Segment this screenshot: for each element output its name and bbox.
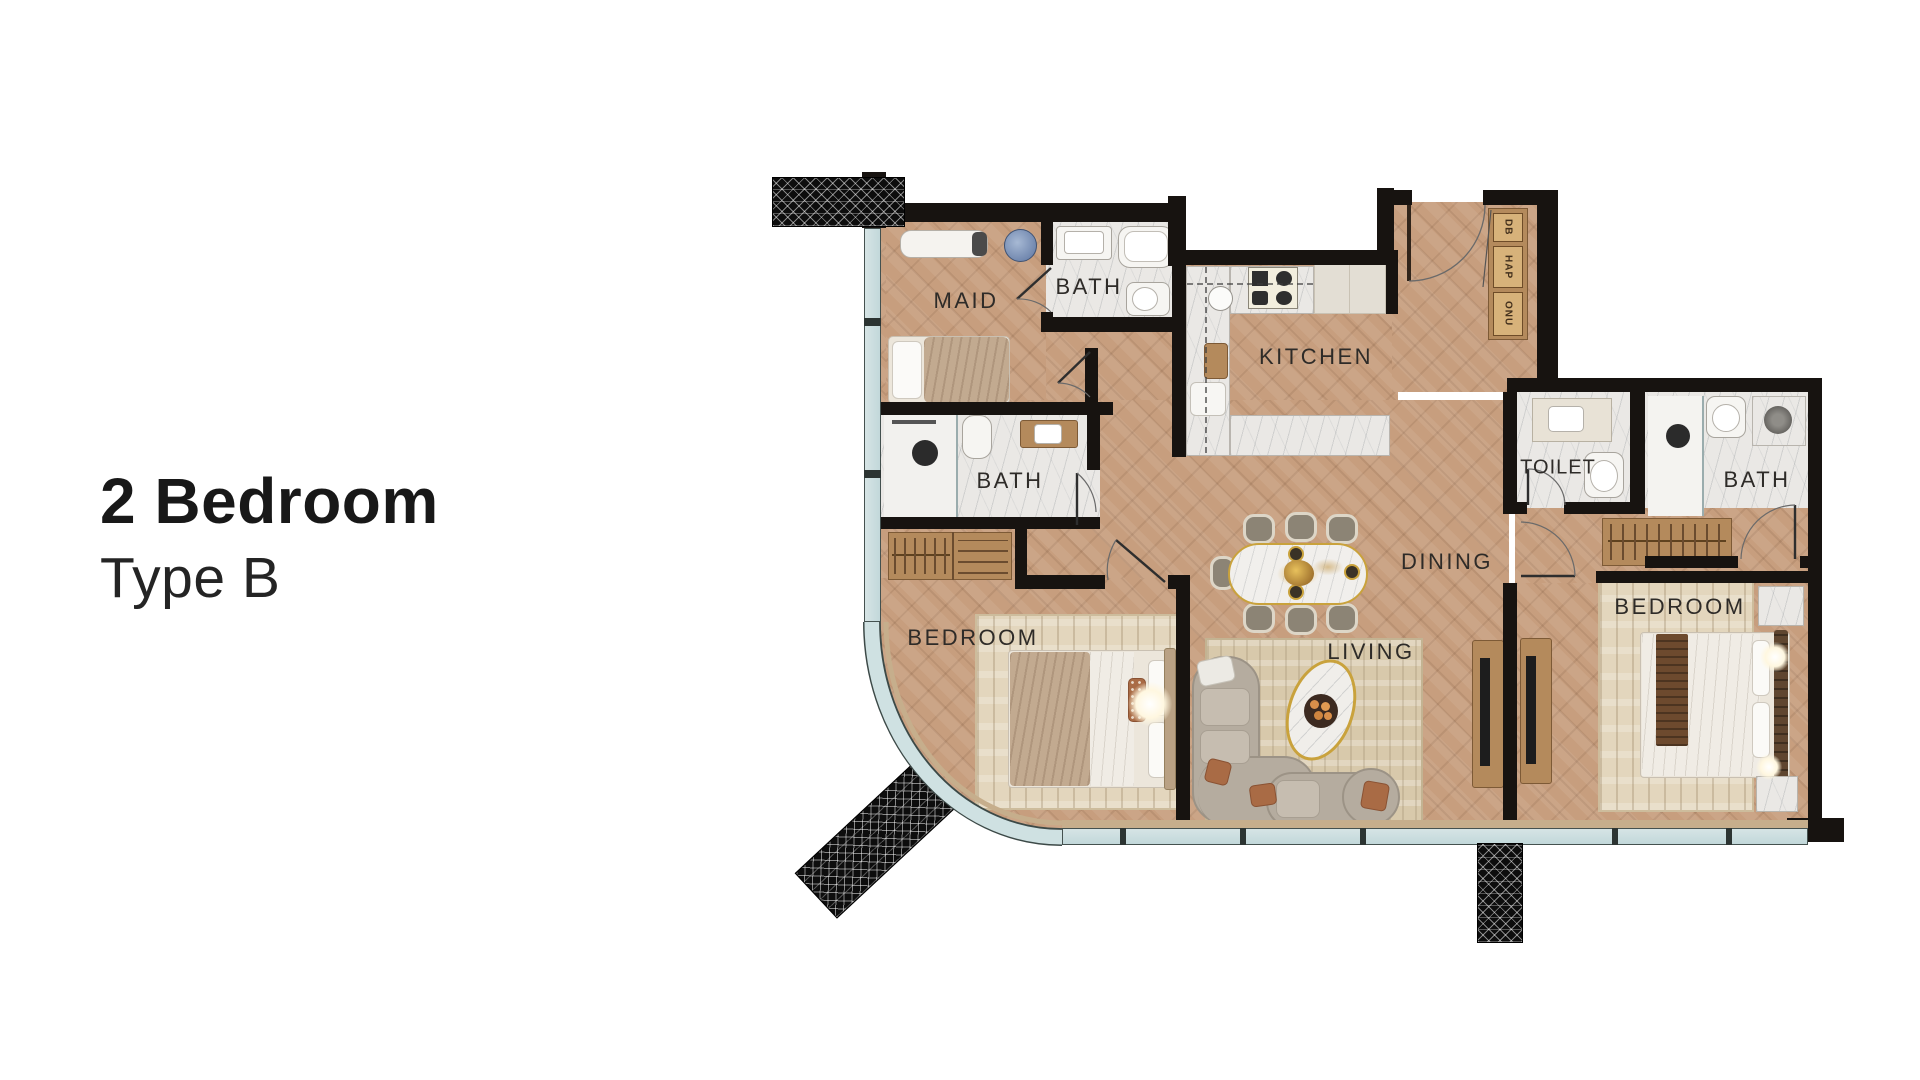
bath-1-toilet-seat (1132, 287, 1158, 311)
wall (1503, 583, 1517, 837)
sofa-cushion (1200, 730, 1250, 764)
toilet-sink (1548, 406, 1584, 432)
dining-chair (1285, 512, 1317, 542)
glass-mullion (1120, 828, 1126, 845)
kitchen-cabinets (1314, 258, 1386, 314)
wall (1564, 502, 1630, 514)
room-label-dining: DINING (1401, 549, 1493, 575)
room-label-bath-1: BATH (1055, 274, 1122, 300)
bedroom-2-runner (1656, 634, 1688, 746)
entry-closet-cell: HAP (1493, 246, 1523, 288)
lounge-accent-pillow (1360, 780, 1390, 812)
dining-plate (1288, 584, 1304, 600)
wall (1630, 392, 1645, 514)
bath-2-sink (1034, 424, 1062, 444)
kitchen-cabinet-divider (1349, 258, 1350, 314)
wall (878, 203, 1178, 222)
glass-mullion (1612, 828, 1618, 845)
wall (1085, 348, 1098, 402)
wardrobe-right-hangers (1610, 524, 1724, 560)
room-label-bedroom-2: BEDROOM (1614, 594, 1745, 620)
bath-2-shower (884, 414, 958, 518)
wall (1168, 196, 1186, 266)
bath-1-sink (1064, 231, 1104, 254)
nightstand (1758, 586, 1804, 626)
shower-head-icon (1666, 424, 1690, 448)
dining-chair (1326, 603, 1358, 633)
wall (1172, 265, 1186, 457)
wall (1808, 392, 1822, 837)
glass-mullion (1360, 828, 1366, 845)
wardrobe-left-shelves (958, 540, 1008, 574)
wall (1800, 556, 1808, 568)
room-label-bath-2: BATH (976, 468, 1043, 494)
wall (1041, 203, 1053, 265)
shaft-hatch-bottom-left (795, 757, 962, 918)
wall (1377, 188, 1394, 254)
room-label-kitchen: KITCHEN (1259, 344, 1373, 370)
room-label-bath-3: BATH (1723, 467, 1790, 493)
maid-bed-pillow (892, 341, 922, 399)
bath-2-toilet (962, 415, 992, 459)
wall (1168, 575, 1190, 589)
wall (876, 517, 1100, 529)
bedroom-2-lamp (1760, 642, 1790, 672)
room-label-bedroom-1: BEDROOM (907, 625, 1038, 651)
kitchen-island (1230, 415, 1390, 456)
glass-wall-bottom (1062, 828, 1808, 845)
room-label-maid: MAID (934, 288, 999, 314)
maid-basket (1004, 229, 1037, 262)
wall (1087, 415, 1100, 470)
wall (1507, 378, 1822, 392)
tv-screen (1480, 658, 1490, 766)
wall (1537, 205, 1558, 392)
kitchen-sink (1208, 286, 1233, 311)
dining-chair (1243, 603, 1275, 633)
wall (1645, 556, 1738, 568)
room-label-living: LIVING (1327, 639, 1414, 665)
room-label-toilet: TOILET (1520, 457, 1596, 480)
window-sill (1062, 820, 1808, 828)
fruit-icon (1310, 700, 1319, 709)
bath-1-tub-inner (1124, 231, 1168, 262)
cutting-board (1204, 343, 1228, 379)
wall (1483, 190, 1558, 205)
tv-console-bedroom-2 (1520, 638, 1552, 784)
stove-burner-icon (1276, 271, 1292, 286)
bedroom-2-lamp (1756, 754, 1782, 780)
fruit-icon (1321, 702, 1330, 711)
glass-mullion (864, 318, 881, 326)
fruit-icon (1324, 712, 1332, 720)
bath-3-shower (1648, 396, 1704, 516)
dining-chair (1326, 514, 1358, 544)
wall (1517, 502, 1527, 514)
entry-closet-cell: DB (1493, 213, 1523, 242)
stove-burner-icon (1252, 271, 1268, 286)
closet-label: HAP (1503, 255, 1514, 279)
wall (1186, 250, 1396, 265)
wall (1015, 575, 1105, 589)
sofa-cushion (1200, 688, 1250, 726)
nightstand (1756, 776, 1798, 812)
bedroom-1-ceiling-light (1128, 682, 1172, 726)
wall (1386, 250, 1398, 314)
shaft-hatch-top-left (772, 177, 905, 227)
shower-head-icon (912, 440, 938, 466)
closet-label: ONU (1503, 301, 1514, 326)
bedroom-1-sheet (1090, 652, 1134, 786)
dining-centerpiece (1284, 560, 1314, 586)
bath-3-toilet-seat (1712, 404, 1740, 432)
page-subtitle: Type B (100, 545, 439, 611)
stove-burner-icon (1276, 291, 1292, 305)
wall (1176, 589, 1190, 838)
tv-screen (1526, 656, 1536, 764)
glass-mullion (1240, 828, 1246, 845)
fruit-icon (1314, 711, 1323, 720)
wall (1041, 317, 1175, 332)
dish-tray (1190, 382, 1226, 416)
title-block: 2 Bedroom Type B (100, 468, 439, 611)
glass-mullion (1726, 828, 1732, 845)
page-title: 2 Bedroom (100, 468, 439, 535)
entry-closet-cell: ONU (1493, 292, 1523, 336)
shower-rail (892, 420, 936, 424)
floorplan-page: 2 Bedroom Type B (0, 0, 1920, 1080)
glass-mullion (864, 470, 881, 478)
wall (1596, 571, 1808, 583)
sofa-cushion (1276, 780, 1320, 818)
maid-bed-blanket (924, 337, 1009, 403)
maid-bench-end (972, 232, 987, 256)
dining-chair (1285, 605, 1317, 635)
closet-label: DB (1503, 219, 1514, 235)
wall (876, 402, 1113, 415)
dining-chair (1243, 514, 1275, 544)
dining-plate (1344, 564, 1360, 580)
bath-3-sink (1764, 406, 1792, 434)
wall (1503, 392, 1517, 514)
bedroom-1-blanket (1010, 652, 1090, 786)
wall (1394, 190, 1412, 205)
shaft-hatch-bottom-center (1477, 843, 1523, 943)
wardrobe-left-divider (952, 532, 954, 580)
wardrobe-left-hangers (894, 538, 948, 574)
sofa-accent-pillow (1249, 782, 1278, 807)
stove-burner-icon (1252, 291, 1268, 305)
glass-wall-left (864, 228, 881, 622)
bedroom-2-pillow (1752, 702, 1770, 758)
